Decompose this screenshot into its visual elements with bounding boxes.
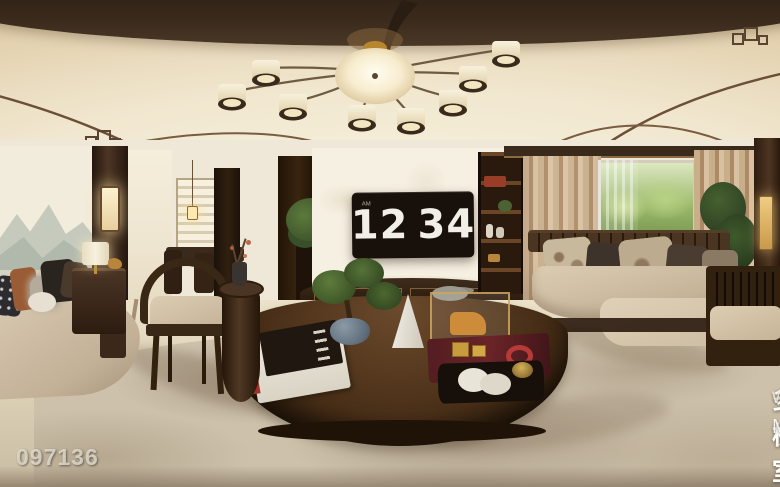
chandelier [170, 0, 520, 145]
armchair-leg [202, 336, 206, 384]
bonsai-pot [330, 318, 370, 345]
wall-sconce-right [759, 196, 773, 250]
armchair-seat-rail [146, 324, 230, 336]
coffee-table-base [258, 420, 546, 442]
photo-id-text: 097136 [16, 444, 99, 471]
flip-clock: 12 34 [352, 191, 475, 258]
pendant-light [187, 206, 198, 220]
branch-bud [246, 240, 251, 245]
tv-screen: AM 12 34 [352, 191, 475, 258]
clock-minutes: 34 [417, 201, 475, 248]
wall-sconce-left [100, 186, 120, 232]
shelf-plant [498, 200, 512, 212]
gold-seal [472, 345, 486, 357]
shelf-red-box [484, 176, 506, 187]
shelf-ornament [488, 254, 500, 262]
model-id-value: M0089036 [772, 416, 780, 438]
bonsai-foliage [366, 282, 402, 310]
table-lamp-stem [94, 265, 97, 274]
clock-hours: 12 [351, 202, 409, 249]
drum-side-table [222, 290, 260, 402]
pendant-cord [192, 160, 193, 208]
amber-ornament [450, 312, 486, 335]
panorama-living-room-photo: AM 12 34 [0, 0, 780, 487]
branch-bud [243, 254, 247, 258]
sofa-arm-cushion [710, 306, 780, 340]
gold-bowl [512, 362, 533, 378]
sofa-pillow [28, 292, 56, 312]
dark-vase [232, 262, 247, 286]
bottom-edge-blur [0, 466, 780, 487]
side-table [72, 268, 126, 334]
gold-seal [452, 342, 469, 357]
white-plate [480, 373, 511, 395]
gold-horse-figurine [108, 258, 122, 269]
model-id-line: 模型ID: M0089036 [772, 387, 780, 439]
display-shelving [478, 152, 524, 294]
sofa-arm-lattice [710, 272, 778, 306]
branch-bud [230, 246, 234, 250]
shelf-vase [496, 227, 504, 238]
shelf-vase [486, 224, 493, 238]
armchair-leg [168, 336, 172, 382]
table-lamp-shade [82, 242, 109, 265]
